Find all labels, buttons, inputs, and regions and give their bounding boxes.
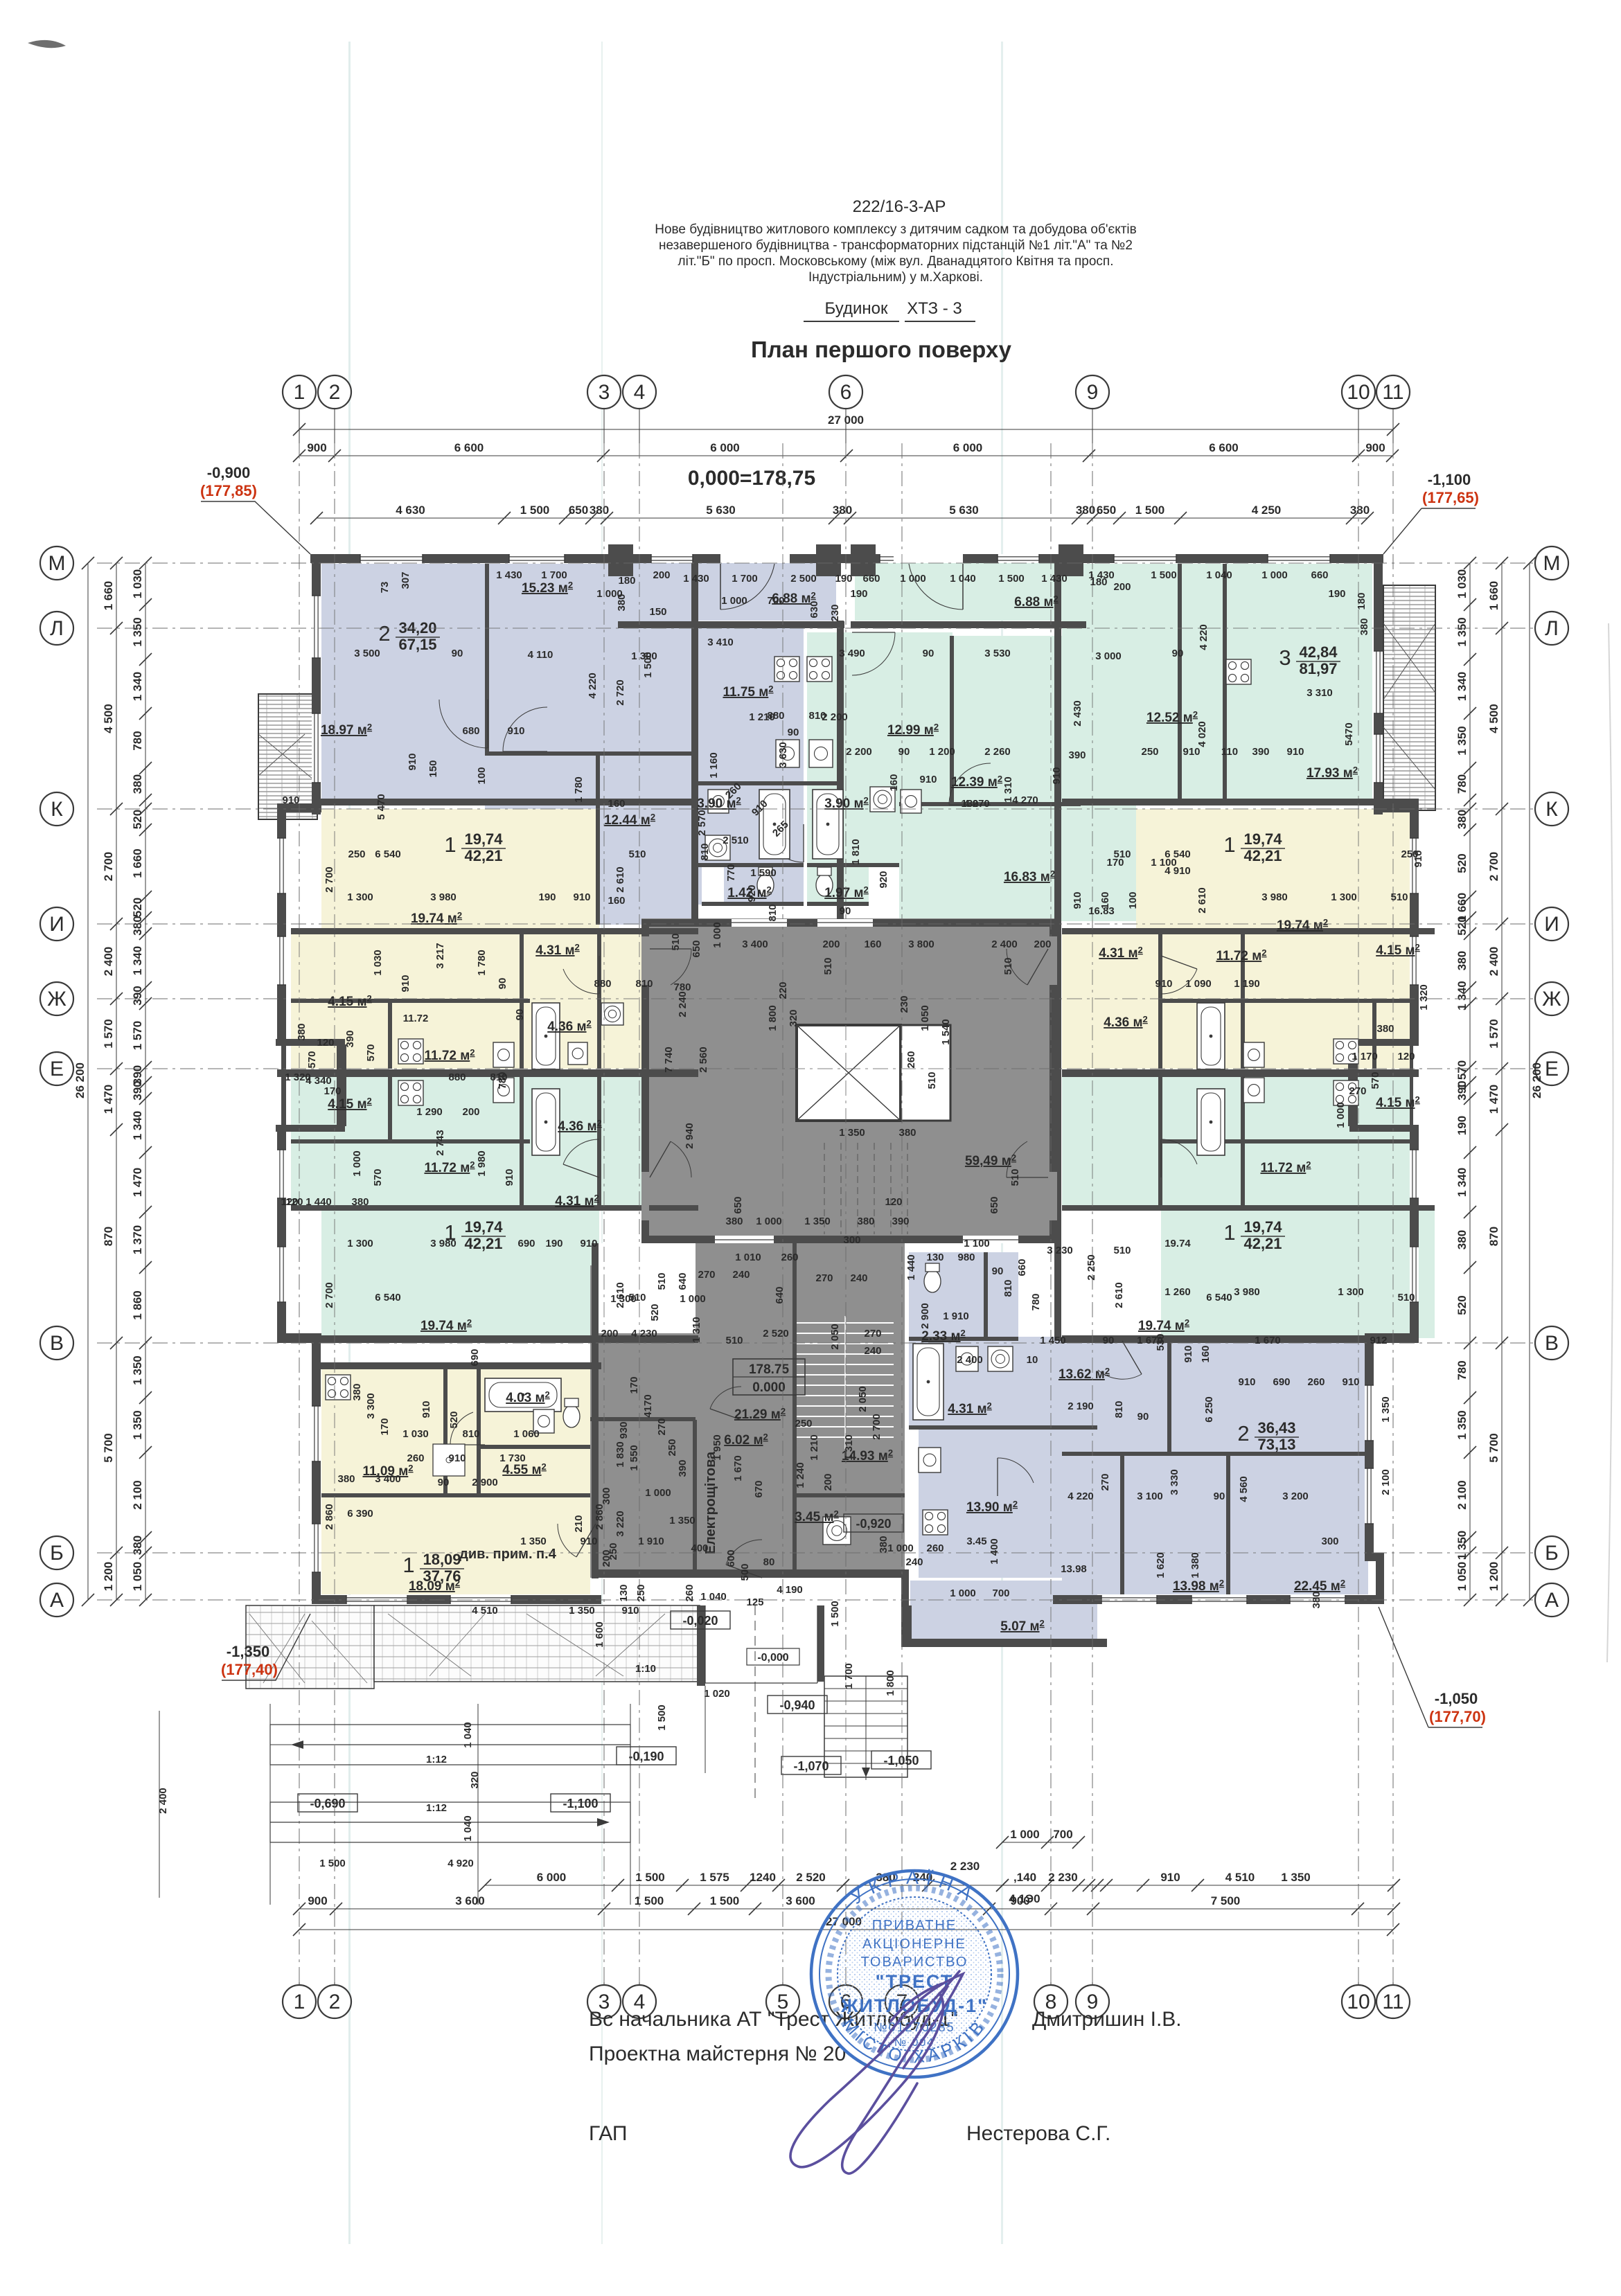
svg-text:4 230: 4 230	[631, 1328, 657, 1340]
svg-text:1 780: 1 780	[476, 950, 488, 976]
svg-text:1 300: 1 300	[1331, 891, 1357, 903]
svg-text:4.31 м2: 4.31 м2	[1099, 945, 1143, 961]
svg-text:780: 780	[1455, 774, 1469, 794]
svg-text:1 340: 1 340	[1455, 981, 1469, 1011]
svg-text:4.31 м2: 4.31 м2	[555, 1193, 599, 1209]
svg-text:2 050: 2 050	[857, 1386, 869, 1412]
svg-text:910: 910	[1286, 746, 1304, 758]
svg-text:1 000: 1 000	[900, 573, 926, 585]
svg-text:380: 380	[833, 504, 852, 517]
svg-text:570: 570	[365, 1044, 377, 1061]
svg-text:4.15 м2: 4.15 м2	[1376, 942, 1420, 958]
svg-text:660: 660	[862, 573, 880, 585]
svg-text:520: 520	[649, 1303, 661, 1321]
svg-text:4 500: 4 500	[1487, 704, 1500, 733]
svg-text:190: 190	[1455, 1116, 1469, 1135]
svg-text:4.15 м2: 4.15 м2	[1376, 1094, 1420, 1110]
svg-text:2 720: 2 720	[614, 679, 626, 706]
svg-text:1 440: 1 440	[305, 1196, 332, 1208]
svg-text:81,97: 81,97	[1299, 660, 1337, 677]
svg-text:2 400: 2 400	[1487, 947, 1500, 977]
svg-text:5 630: 5 630	[706, 504, 736, 517]
svg-text:1 090: 1 090	[1185, 978, 1212, 990]
svg-text:4 220: 4 220	[587, 673, 599, 699]
svg-text:90: 90	[438, 1477, 450, 1488]
svg-text:910: 910	[1238, 1376, 1255, 1388]
svg-text:150: 150	[427, 760, 439, 777]
svg-text:1 350: 1 350	[1455, 617, 1469, 647]
svg-text:6 000: 6 000	[710, 441, 740, 454]
svg-text:(177,85): (177,85)	[200, 482, 257, 499]
svg-text:2 500: 2 500	[790, 573, 817, 585]
svg-text:3 310: 3 310	[1306, 687, 1333, 699]
svg-text:390: 390	[131, 986, 144, 1005]
svg-text:1 800: 1 800	[885, 1670, 896, 1696]
svg-text:1 340: 1 340	[131, 946, 144, 976]
svg-text:ТОВАРИСТВО: ТОВАРИСТВО	[861, 1955, 968, 1970]
svg-text:12.99 м2: 12.99 м2	[887, 722, 939, 738]
svg-text:-1,100: -1,100	[563, 1797, 598, 1810]
svg-text:11.72: 11.72	[403, 1013, 429, 1024]
svg-text:73: 73	[379, 582, 391, 594]
svg-text:1 500: 1 500	[520, 504, 550, 517]
svg-text:900: 900	[307, 441, 326, 454]
svg-text:110: 110	[1221, 746, 1238, 758]
svg-text:11.72 м2: 11.72 м2	[1216, 947, 1266, 963]
svg-text:690: 690	[469, 1349, 481, 1366]
svg-text:42,84: 42,84	[1299, 643, 1338, 661]
svg-text:1 910: 1 910	[943, 1310, 969, 1322]
svg-text:1 350: 1 350	[131, 1410, 144, 1440]
svg-text:Дмитришин І.В.: Дмитришин І.В.	[1032, 2008, 1182, 2031]
svg-text:-0,690: -0,690	[310, 1797, 345, 1810]
svg-text:230: 230	[898, 995, 910, 1013]
svg-text:1: 1	[402, 1553, 414, 1577]
svg-text:13.98 м2: 13.98 м2	[1173, 1578, 1224, 1594]
svg-text:200: 200	[1034, 938, 1051, 950]
svg-text:6 390: 6 390	[347, 1508, 373, 1520]
svg-text:2 610: 2 610	[1113, 1282, 1125, 1308]
svg-text:1 700: 1 700	[541, 569, 567, 581]
svg-text:1 300: 1 300	[1338, 1286, 1364, 1298]
svg-text:-1,050: -1,050	[1435, 1690, 1478, 1707]
svg-text:-1,100: -1,100	[1428, 471, 1471, 488]
svg-text:6 540: 6 540	[375, 848, 401, 860]
svg-text:260: 260	[1307, 1376, 1325, 1388]
svg-text:810: 810	[767, 904, 779, 921]
svg-text:630: 630	[808, 600, 820, 618]
svg-text:90: 90	[452, 648, 463, 659]
svg-text:19,74: 19,74	[464, 830, 503, 848]
svg-text:912: 912	[1370, 1335, 1387, 1346]
svg-text:19.74 м2: 19.74 м2	[420, 1317, 472, 1333]
svg-text:3 980: 3 980	[430, 891, 457, 903]
svg-text:4: 4	[634, 381, 646, 404]
svg-text:240: 240	[905, 1556, 923, 1568]
svg-text:390: 390	[892, 1216, 909, 1227]
svg-text:2 610: 2 610	[1196, 887, 1208, 914]
svg-text:1 350: 1 350	[839, 1127, 865, 1139]
svg-text:810: 810	[462, 1428, 479, 1440]
svg-text:910: 910	[448, 1452, 466, 1464]
svg-text:12.52 м2: 12.52 м2	[1146, 709, 1198, 725]
svg-text:9: 9	[1087, 381, 1099, 404]
svg-text:4 250: 4 250	[1252, 504, 1282, 517]
svg-text:570: 570	[306, 1051, 318, 1068]
svg-text:3 980: 3 980	[1234, 1286, 1260, 1298]
svg-text:2 743: 2 743	[434, 1130, 446, 1156]
svg-text:-0,190: -0,190	[628, 1750, 664, 1763]
svg-text:1 980: 1 980	[476, 1150, 488, 1177]
svg-text:1 000: 1 000	[721, 595, 747, 607]
svg-text:-0,900: -0,900	[207, 464, 250, 481]
svg-text:1 700: 1 700	[843, 1663, 855, 1689]
svg-text:90: 90	[1137, 1411, 1149, 1423]
svg-text:42,21: 42,21	[1243, 1235, 1282, 1252]
svg-text:1 350: 1 350	[131, 1355, 144, 1385]
svg-text:1 350: 1 350	[1455, 726, 1469, 756]
svg-text:260: 260	[926, 1542, 944, 1554]
svg-text:520: 520	[1455, 1295, 1469, 1315]
svg-text:90: 90	[1214, 1490, 1225, 1502]
svg-text:390: 390	[344, 1030, 356, 1047]
svg-text:510: 510	[725, 1335, 743, 1346]
svg-text:600: 600	[725, 1549, 737, 1567]
svg-text:15.23 м2: 15.23 м2	[522, 580, 573, 596]
svg-text:7 500: 7 500	[1211, 1894, 1241, 1907]
svg-text:320: 320	[469, 1771, 481, 1788]
svg-text:2 700: 2 700	[871, 1414, 883, 1440]
svg-text:1 030: 1 030	[402, 1428, 429, 1440]
svg-text:380: 380	[351, 1383, 363, 1400]
svg-text:1 500: 1 500	[1135, 504, 1165, 517]
svg-text:Нове будівництво житлового ком: Нове будівництво житлового комплексу з д…	[655, 222, 1137, 237]
svg-text:Л: Л	[1545, 617, 1559, 640]
svg-text:59,49 м2: 59,49 м2	[965, 1153, 1016, 1168]
svg-text:4.31 м2: 4.31 м2	[948, 1400, 992, 1416]
svg-text:300: 300	[843, 1234, 860, 1246]
svg-text:1 470: 1 470	[102, 1085, 115, 1114]
svg-text:3 230: 3 230	[1047, 1245, 1073, 1256]
svg-text:К: К	[51, 798, 63, 821]
svg-text:16.83 м2: 16.83 м2	[1004, 869, 1055, 884]
svg-text:1 200: 1 200	[929, 746, 955, 758]
svg-text:літ."Б" по просп. Московському: літ."Б" по просп. Московському (між вул.…	[678, 254, 1114, 269]
svg-text:К: К	[1545, 798, 1558, 821]
svg-text:190: 190	[1328, 588, 1345, 600]
svg-text:11.72 м2: 11.72 м2	[424, 1159, 475, 1175]
svg-text:1 350: 1 350	[1380, 1396, 1392, 1423]
svg-text:178.75: 178.75	[749, 1362, 790, 1377]
svg-text:690: 690	[1273, 1376, 1290, 1388]
svg-text:3: 3	[599, 381, 610, 404]
svg-text:320: 320	[788, 1009, 799, 1026]
svg-text:2 520: 2 520	[796, 1871, 826, 1884]
svg-text:160: 160	[1099, 891, 1111, 909]
svg-text:незавершеного будівництва - тр: незавершеного будівництва - трансформато…	[659, 238, 1133, 253]
svg-text:1 800: 1 800	[767, 1005, 779, 1031]
svg-text:1 000: 1 000	[756, 1216, 782, 1227]
svg-text:1 030: 1 030	[372, 950, 384, 976]
svg-text:910: 910	[580, 1536, 597, 1547]
svg-text:270: 270	[1349, 1085, 1366, 1097]
svg-text:2 050: 2 050	[829, 1324, 841, 1350]
svg-text:42,21: 42,21	[1243, 847, 1282, 864]
svg-text:19,74: 19,74	[1243, 1218, 1282, 1236]
svg-text:660: 660	[1311, 569, 1328, 581]
svg-text:"ТРЕСТ: "ТРЕСТ	[876, 1971, 954, 1992]
svg-text:510: 510	[1397, 1292, 1415, 1303]
svg-text:0,000=178,75: 0,000=178,75	[688, 467, 815, 490]
svg-text:4 910: 4 910	[1164, 865, 1191, 877]
svg-text:930: 930	[618, 1421, 630, 1439]
svg-text:1 000: 1 000	[711, 922, 723, 948]
svg-text:2 190: 2 190	[1068, 1400, 1094, 1412]
svg-text:36,43: 36,43	[1257, 1419, 1295, 1436]
svg-text:-0,940: -0,940	[779, 1698, 815, 1712]
svg-text:4 220: 4 220	[1068, 1490, 1094, 1502]
svg-text:Індустріальним) у м.Харкові.: Індустріальним) у м.Харкові.	[808, 270, 983, 285]
svg-text:160: 160	[608, 798, 625, 810]
svg-text:1 200: 1 200	[102, 1562, 115, 1592]
svg-text:3: 3	[1279, 646, 1291, 670]
svg-text:1 000: 1 000	[596, 588, 623, 600]
svg-text:670: 670	[753, 1480, 765, 1497]
svg-text:3 100: 3 100	[1137, 1490, 1163, 1502]
svg-text:1 300: 1 300	[610, 1293, 637, 1305]
svg-text:6 540: 6 540	[1164, 848, 1191, 860]
svg-text:В: В	[1545, 1332, 1559, 1355]
svg-text:-0,020: -0,020	[682, 1614, 718, 1628]
svg-text:380: 380	[1376, 1023, 1394, 1035]
svg-text:1 310: 1 310	[691, 1317, 702, 1343]
svg-text:170: 170	[628, 1376, 640, 1394]
svg-text:230: 230	[829, 604, 841, 621]
svg-text:26 200: 26 200	[1530, 1062, 1543, 1098]
svg-text:№01270285: №01270285	[874, 2020, 955, 2034]
svg-text:73,13: 73,13	[1257, 1436, 1295, 1453]
svg-text:Будинок: Будинок	[825, 299, 888, 318]
svg-text:В: В	[50, 1332, 64, 1355]
svg-text:650: 650	[691, 940, 702, 957]
svg-text:90: 90	[1172, 648, 1184, 659]
svg-text:1 860: 1 860	[131, 1290, 144, 1320]
svg-text:810: 810	[808, 710, 826, 722]
svg-text:170: 170	[379, 1418, 391, 1435]
svg-text:3 220: 3 220	[614, 1511, 626, 1537]
svg-text:10: 10	[1347, 381, 1370, 404]
svg-text:6.88 м2: 6.88 м2	[1014, 594, 1058, 609]
svg-text:2 230: 2 230	[950, 1860, 980, 1873]
svg-text:1 570: 1 570	[102, 1019, 115, 1049]
svg-text:0.000: 0.000	[752, 1380, 786, 1395]
svg-text:200: 200	[1113, 581, 1131, 593]
svg-text:90: 90	[1103, 1335, 1115, 1346]
svg-text:1 320: 1 320	[285, 1071, 311, 1083]
svg-text:250: 250	[666, 1439, 678, 1456]
svg-text:910: 910	[504, 1168, 515, 1186]
svg-text:980: 980	[957, 1252, 975, 1263]
svg-text:5 700: 5 700	[102, 1433, 115, 1463]
svg-text:2 700: 2 700	[324, 1282, 335, 1308]
svg-text:130: 130	[926, 1252, 944, 1263]
svg-text:1 780: 1 780	[573, 776, 585, 803]
svg-text:1 660: 1 660	[131, 848, 144, 878]
svg-text:4.36 м2: 4.36 м2	[558, 1118, 602, 1134]
svg-text:1.97 м2: 1.97 м2	[824, 884, 869, 900]
svg-text:570: 570	[372, 1168, 384, 1186]
svg-text:900: 900	[308, 1894, 327, 1907]
svg-text:2 860: 2 860	[594, 1504, 605, 1530]
svg-text:4.31 м2: 4.31 м2	[535, 942, 580, 958]
svg-text:1 000: 1 000	[887, 1542, 914, 1554]
svg-text:190: 190	[835, 573, 852, 585]
svg-text:910: 910	[420, 1400, 432, 1418]
svg-text:1 950: 1 950	[711, 1434, 723, 1461]
svg-text:910: 910	[407, 753, 418, 770]
svg-text:1: 1	[294, 1991, 305, 2013]
svg-text:380: 380	[131, 774, 144, 794]
svg-text:1 060: 1 060	[513, 1428, 540, 1440]
svg-text:1 340: 1 340	[1455, 1168, 1469, 1198]
svg-text:270: 270	[815, 1272, 833, 1284]
svg-text:1 320: 1 320	[1418, 984, 1430, 1011]
svg-text:2 700: 2 700	[324, 866, 335, 893]
svg-text:-0,920: -0,920	[856, 1517, 891, 1531]
svg-text:1: 1	[1223, 1220, 1235, 1245]
svg-text:4 020: 4 020	[1196, 721, 1208, 747]
svg-text:510: 510	[1009, 1168, 1021, 1186]
svg-text:67,15: 67,15	[398, 636, 436, 653]
svg-text:160: 160	[608, 895, 625, 907]
svg-text:6.02 м2: 6.02 м2	[724, 1432, 768, 1448]
svg-text:380: 380	[857, 1216, 874, 1227]
svg-text:6 600: 6 600	[454, 441, 484, 454]
svg-text:1: 1	[1223, 833, 1235, 857]
svg-text:19,74: 19,74	[464, 1218, 503, 1236]
svg-text:1 810: 1 810	[850, 839, 862, 865]
svg-text:90: 90	[923, 648, 934, 659]
svg-text:2 200: 2 200	[846, 746, 872, 758]
svg-text:4 920: 4 920	[448, 1858, 474, 1869]
svg-text:див. прим. п.4: див. прим. п.4	[459, 1547, 557, 1562]
svg-text:650: 650	[1097, 504, 1116, 517]
svg-text:5 470: 5 470	[375, 794, 387, 820]
svg-text:910: 910	[1072, 891, 1083, 909]
svg-text:1 575: 1 575	[700, 1871, 729, 1884]
svg-text:210: 210	[573, 1515, 585, 1532]
svg-text:3 500: 3 500	[354, 648, 380, 659]
svg-text:Ж: Ж	[1542, 988, 1561, 1011]
svg-text:510: 510	[656, 1272, 668, 1290]
svg-text:Електрощітова: Електрощітова	[703, 1451, 718, 1554]
svg-text:90: 90	[992, 1265, 1004, 1277]
svg-text:19,74: 19,74	[1243, 830, 1282, 848]
svg-text:1 430: 1 430	[1041, 573, 1068, 585]
svg-text:170: 170	[324, 1085, 341, 1097]
svg-text:380: 380	[1455, 1230, 1469, 1249]
svg-text:1 340: 1 340	[131, 672, 144, 702]
svg-text:690: 690	[517, 1238, 535, 1249]
svg-text:250: 250	[1141, 746, 1158, 758]
svg-text:510: 510	[1002, 957, 1014, 975]
svg-text:18,09: 18,09	[423, 1551, 461, 1568]
svg-text:И: И	[49, 913, 64, 936]
svg-text:390: 390	[677, 1459, 689, 1477]
svg-text:910: 910	[1155, 978, 1172, 990]
svg-text:307: 307	[400, 571, 411, 589]
svg-text:(177,65): (177,65)	[1422, 489, 1479, 506]
svg-text:Нестерова С.Г.: Нестерова С.Г.	[966, 2122, 1110, 2145]
svg-text:1 670: 1 670	[1255, 1335, 1281, 1346]
svg-text:3 400: 3 400	[742, 938, 768, 950]
svg-text:1 340: 1 340	[131, 1111, 144, 1141]
svg-text:1 500: 1 500	[710, 1894, 740, 1907]
svg-text:510: 510	[1113, 848, 1131, 860]
svg-text:1 000: 1 000	[1261, 569, 1288, 581]
svg-text:2 700: 2 700	[102, 852, 115, 882]
svg-text:250: 250	[348, 848, 365, 860]
svg-text:200: 200	[601, 1328, 618, 1340]
svg-text:1 550: 1 550	[628, 1445, 640, 1471]
svg-text:380: 380	[296, 1023, 308, 1040]
svg-text:810: 810	[635, 978, 653, 990]
svg-text:380: 380	[1311, 1591, 1322, 1608]
svg-text:1 100: 1 100	[964, 1238, 990, 1249]
svg-text:1 050: 1 050	[1455, 1562, 1469, 1592]
svg-text:2: 2	[378, 621, 390, 646]
svg-text:1 500: 1 500	[829, 1601, 841, 1627]
svg-text:1 430: 1 430	[496, 569, 522, 581]
svg-text:380: 380	[1358, 618, 1370, 635]
svg-text:2 610: 2 610	[614, 866, 626, 893]
svg-text:6 000: 6 000	[537, 1871, 567, 1884]
svg-text:520: 520	[1455, 853, 1469, 873]
svg-text:150: 150	[649, 606, 666, 618]
svg-text:900: 900	[1365, 441, 1385, 454]
svg-text:2 260: 2 260	[984, 746, 1011, 758]
svg-text:910: 910	[580, 1238, 597, 1249]
svg-text:17.93 м2: 17.93 м2	[1306, 765, 1358, 781]
svg-text:1 400: 1 400	[989, 1538, 1000, 1565]
svg-text:2 900: 2 900	[919, 1303, 931, 1329]
svg-text:1 500: 1 500	[319, 1858, 346, 1869]
svg-text:90: 90	[840, 905, 851, 917]
svg-text:190: 190	[538, 891, 556, 903]
svg-text:250: 250	[795, 1418, 812, 1430]
svg-text:6 540: 6 540	[375, 1292, 401, 1303]
svg-text:4.03 м2: 4.03 м2	[506, 1389, 550, 1405]
svg-text:12.44 м2: 12.44 м2	[604, 812, 655, 828]
svg-text:380: 380	[131, 1536, 144, 1555]
svg-text:1:12: 1:12	[426, 1754, 447, 1765]
svg-text:920: 920	[878, 871, 889, 888]
svg-text:910: 910	[1412, 850, 1424, 867]
svg-text:80: 80	[763, 1556, 775, 1568]
svg-text:1 350: 1 350	[804, 1216, 831, 1227]
svg-text:910: 910	[573, 891, 590, 903]
svg-text:(177,70): (177,70)	[1429, 1708, 1486, 1725]
svg-text:Проектна майстерня № 20: Проектна майстерня № 20	[589, 2043, 846, 2065]
svg-text:1 730: 1 730	[499, 1452, 526, 1464]
svg-text:910: 910	[507, 725, 524, 737]
svg-text:2 250: 2 250	[1086, 1254, 1097, 1281]
svg-text:1 430: 1 430	[683, 573, 709, 585]
svg-text:390: 390	[1252, 746, 1269, 758]
svg-text:390: 390	[131, 1080, 144, 1100]
svg-text:1 500: 1 500	[642, 652, 654, 678]
svg-text:10: 10	[1347, 1991, 1370, 2013]
